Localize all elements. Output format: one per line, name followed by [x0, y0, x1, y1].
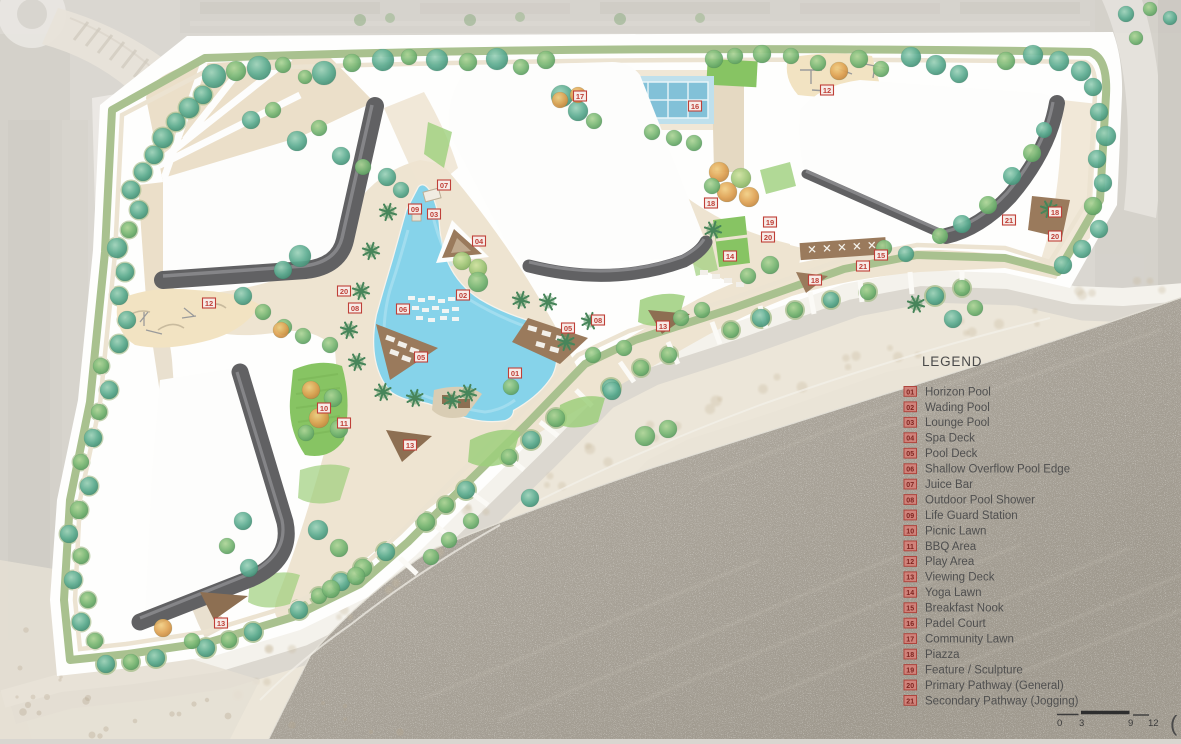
svg-text:07: 07: [440, 181, 448, 190]
svg-text:21: 21: [1005, 216, 1013, 225]
svg-text:15: 15: [906, 606, 914, 613]
svg-text:14: 14: [726, 252, 735, 261]
svg-text:Spa Deck: Spa Deck: [925, 433, 975, 445]
svg-text:01: 01: [511, 369, 519, 378]
svg-text:06: 06: [906, 467, 914, 474]
svg-text:11: 11: [906, 544, 914, 551]
svg-text:Yoga Lawn: Yoga Lawn: [925, 587, 982, 599]
svg-text:14: 14: [906, 590, 914, 597]
svg-text:Life Guard Station: Life Guard Station: [925, 510, 1018, 522]
svg-text:Juice Bar: Juice Bar: [925, 479, 973, 491]
svg-text:18: 18: [707, 199, 715, 208]
svg-text:19: 19: [906, 667, 914, 674]
svg-text:02: 02: [906, 405, 914, 412]
svg-text:08: 08: [906, 497, 914, 504]
svg-text:Primary Pathway (General): Primary Pathway (General): [925, 680, 1064, 692]
svg-text:20: 20: [906, 683, 914, 690]
svg-text:21: 21: [906, 698, 914, 705]
svg-text:BBQ Area: BBQ Area: [925, 541, 977, 553]
svg-text:18: 18: [906, 652, 914, 659]
svg-text:20: 20: [1051, 232, 1059, 241]
svg-text:03: 03: [906, 420, 914, 427]
svg-text:Secondary Pathway (Jogging): Secondary Pathway (Jogging): [925, 695, 1079, 707]
svg-text:13: 13: [659, 322, 667, 331]
svg-text:Horizon Pool: Horizon Pool: [925, 386, 991, 398]
svg-text:Feature / Sculpture: Feature / Sculpture: [925, 664, 1023, 676]
svg-text:Play Area: Play Area: [925, 556, 975, 568]
svg-text:13: 13: [906, 575, 914, 582]
svg-text:04: 04: [475, 237, 484, 246]
svg-text:05: 05: [906, 451, 914, 458]
svg-text:Padel Court: Padel Court: [925, 618, 987, 630]
svg-text:12: 12: [205, 299, 213, 308]
svg-text:Picnic Lawn: Picnic Lawn: [925, 525, 986, 537]
svg-text:03: 03: [430, 210, 438, 219]
svg-text:LEGEND: LEGEND: [922, 354, 982, 369]
svg-text:12: 12: [906, 559, 914, 566]
svg-text:09: 09: [906, 513, 914, 520]
svg-text:Pool Deck: Pool Deck: [925, 448, 978, 460]
svg-text:20: 20: [340, 287, 348, 296]
svg-text:Viewing Deck: Viewing Deck: [925, 572, 995, 584]
svg-text:3: 3: [1079, 718, 1084, 729]
svg-text:20: 20: [764, 233, 772, 242]
svg-text:11: 11: [340, 419, 348, 428]
svg-text:17: 17: [906, 637, 914, 644]
svg-text:21: 21: [859, 262, 867, 271]
svg-text:12: 12: [1148, 718, 1159, 729]
svg-text:06: 06: [399, 305, 407, 314]
svg-text:0: 0: [1057, 718, 1062, 729]
svg-text:9: 9: [1128, 718, 1133, 729]
svg-text:Lounge Pool: Lounge Pool: [925, 417, 990, 429]
svg-text:Community Lawn: Community Lawn: [925, 634, 1014, 646]
svg-text:Piazza: Piazza: [925, 649, 960, 661]
svg-text:08: 08: [594, 316, 602, 325]
svg-text:16: 16: [906, 621, 914, 628]
svg-text:Breakfast Nook: Breakfast Nook: [925, 603, 1004, 615]
svg-text:04: 04: [906, 436, 914, 443]
svg-text:18: 18: [1051, 208, 1059, 217]
svg-text:15: 15: [877, 251, 885, 260]
svg-text:12: 12: [823, 86, 831, 95]
svg-text:05: 05: [417, 353, 425, 362]
svg-text:13: 13: [406, 441, 414, 450]
svg-text:01: 01: [906, 389, 914, 396]
svg-text:Shallow Overflow Pool Edge: Shallow Overflow Pool Edge: [925, 464, 1070, 476]
svg-text:02: 02: [459, 291, 467, 300]
svg-text:19: 19: [766, 218, 774, 227]
svg-text:16: 16: [691, 102, 699, 111]
svg-text:10: 10: [906, 528, 914, 535]
svg-text:Wading Pool: Wading Pool: [925, 402, 990, 414]
svg-text:05: 05: [564, 324, 572, 333]
svg-text:Outdoor Pool Shower: Outdoor Pool Shower: [925, 494, 1035, 506]
svg-text:17: 17: [576, 92, 584, 101]
svg-text:08: 08: [351, 304, 359, 313]
svg-text:(: (: [1170, 711, 1178, 736]
svg-text:09: 09: [411, 205, 419, 214]
svg-text:10: 10: [320, 404, 328, 413]
svg-text:07: 07: [906, 482, 914, 489]
svg-text:18: 18: [811, 276, 819, 285]
svg-text:13: 13: [217, 619, 225, 628]
